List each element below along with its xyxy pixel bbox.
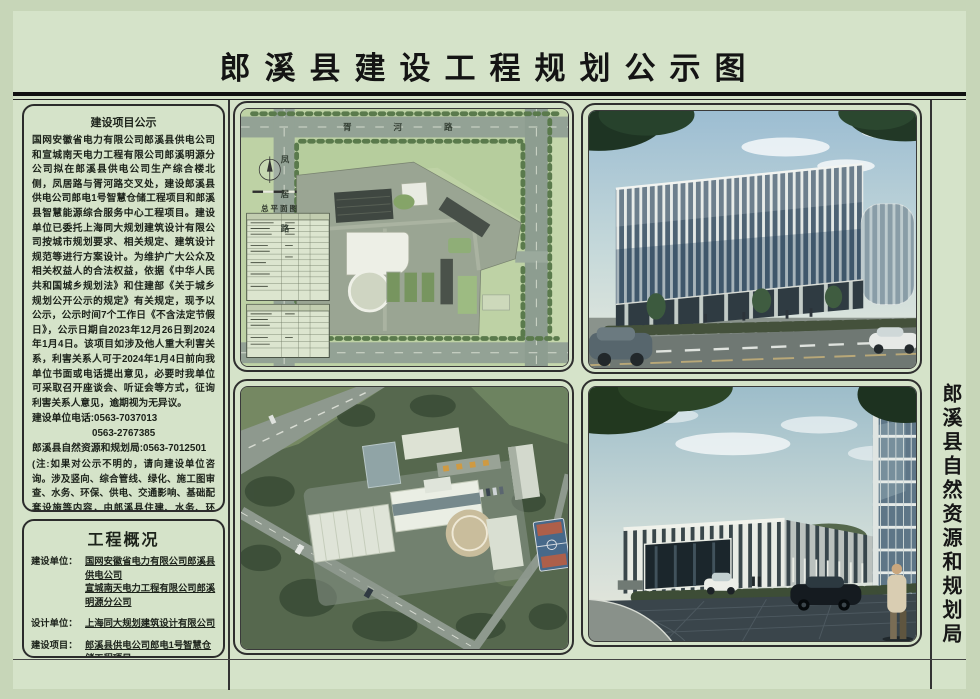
entrance-view-drawing	[589, 387, 916, 641]
site-plan: 总平面图 胥河路 凤居路	[240, 108, 569, 367]
overview-title: 工程概况	[31, 526, 216, 550]
rendering-entrance-view	[588, 386, 917, 642]
field-values: 郎溪县供电公司郎电1号智慧仓储工程项目 郎溪县智慧能源综合服务中心工程项目	[85, 639, 216, 659]
column-divider-left	[228, 100, 230, 690]
overview-row-project: 建设项目： 郎溪县供电公司郎电1号智慧仓储工程项目 郎溪县智慧能源综合服务中心工…	[31, 639, 216, 659]
street-view-drawing	[589, 111, 916, 368]
long-dark-building	[440, 259, 452, 305]
rendering-aerial-view-frame	[233, 379, 574, 655]
field-label: 建设项目：	[31, 639, 85, 659]
tower-roof	[363, 442, 401, 488]
field-value: 国网安徽省电力有限公司郎溪县供电公司	[85, 556, 215, 580]
bureau-phone: 郎溪县自然资源和规划局:0563-7012501	[32, 441, 215, 456]
aerial-view-drawing	[241, 387, 568, 649]
planning-notice-board: 郎溪县建设工程规划公示图 建设项目公示 国网安徽省电力有限公司郎溪县供电公司和宣…	[0, 0, 980, 699]
title-rule-thin	[13, 99, 966, 100]
road-label-top: 胥河路	[343, 121, 495, 133]
page-title: 郎溪县建设工程规划公示图	[13, 43, 966, 88]
distant-car	[618, 580, 643, 589]
notice-panel: 建设项目公示 国网安徽省电力有限公司郎溪县供电公司和宣城南天电力工程有限公司郎溪…	[22, 104, 225, 512]
field-label: 建设单位：	[31, 555, 85, 609]
field-values: 上海同大规划建筑设计有限公司	[85, 617, 216, 631]
builder-phone: 建设单位电话:0563-7037013	[32, 411, 215, 426]
rendering-entrance-view-frame	[581, 379, 922, 647]
notice-note: (注:如果对公示不明的，请向建设单位咨询。涉及竖向、综合管线、绿化、施工图审查、…	[32, 457, 215, 512]
overview-panel: 工程概况 建设单位： 国网安徽省电力有限公司郎溪县供电公司 宣城南天电力工程有限…	[22, 519, 225, 658]
notice-title: 建设项目公示	[32, 114, 215, 130]
field-value: 宣城南天电力工程有限公司郎溪明源分公司	[85, 583, 215, 607]
sheet: 郎溪县建设工程规划公示图 建设项目公示 国网安徽省电力有限公司郎溪县供电公司和宣…	[13, 11, 966, 689]
agency-strip-label: 郎溪县自然资源和规划局	[935, 383, 965, 673]
column-divider-right	[930, 100, 932, 689]
parking-rows	[387, 272, 435, 302]
rendering-street-view	[588, 110, 917, 369]
field-label: 设计单位：	[31, 617, 85, 631]
rendering-street-view-frame	[581, 103, 922, 374]
bottom-rule	[13, 659, 966, 660]
field-value: 上海同大规划建筑设计有限公司	[85, 618, 215, 628]
builder-phone-2: 0563-2767385	[32, 426, 215, 441]
title-rule-thick	[13, 92, 966, 96]
warehouse-building	[334, 189, 394, 223]
field-values: 国网安徽省电力有限公司郎溪县供电公司 宣城南天电力工程有限公司郎溪明源分公司	[85, 555, 216, 609]
overview-row-designer: 设计单位： 上海同大规划建筑设计有限公司	[31, 617, 216, 631]
road-label-left: 凤居路	[279, 155, 291, 259]
field-value: 郎溪县供电公司郎电1号智慧仓储工程项目	[85, 640, 211, 659]
rendering-aerial-view	[240, 386, 569, 650]
notice-body: 国网安徽省电力有限公司郎溪县供电公司和宣城南天电力工程有限公司郎溪明源分公司拟在…	[32, 134, 215, 411]
site-plan-frame: 总平面图 胥河路 凤居路	[233, 101, 574, 372]
overview-row-builder: 建设单位： 国网安徽省电力有限公司郎溪县供电公司 宣城南天电力工程有限公司郎溪明…	[31, 555, 216, 609]
